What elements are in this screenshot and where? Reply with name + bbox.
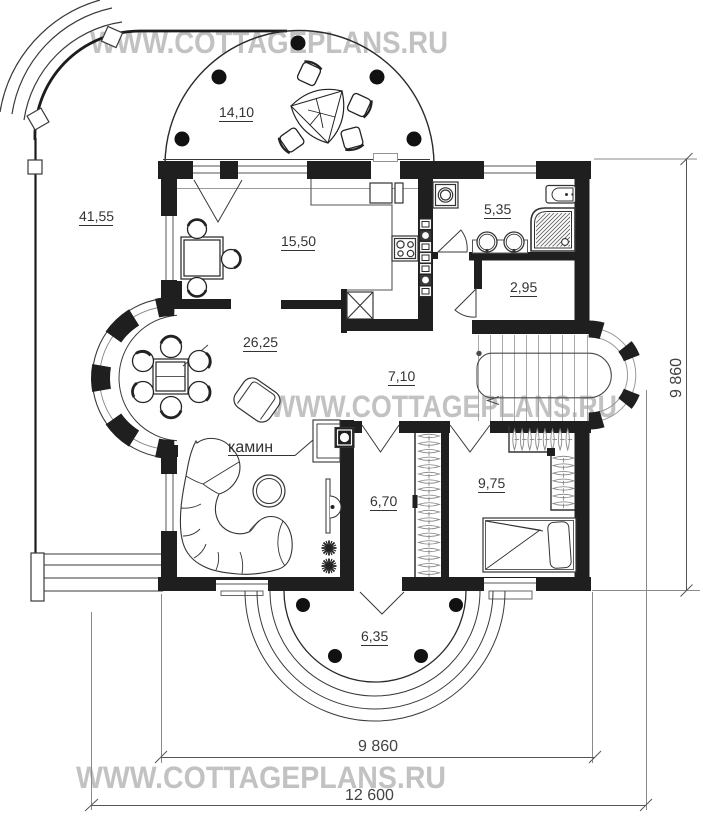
svg-text:2,95: 2,95 — [510, 279, 537, 295]
svg-text:9,75: 9,75 — [478, 475, 505, 491]
svg-text:WWW.COTTAGEPLANS.RU: WWW.COTTAGEPLANS.RU — [270, 389, 617, 424]
svg-text:26,25: 26,25 — [243, 334, 278, 350]
svg-text:6,35: 6,35 — [361, 628, 388, 644]
svg-text:15,50: 15,50 — [281, 233, 316, 249]
svg-text:41,55: 41,55 — [79, 208, 114, 224]
svg-text:5,35: 5,35 — [484, 201, 511, 217]
svg-text:9 860: 9 860 — [668, 358, 685, 398]
svg-text:7,10: 7,10 — [388, 368, 415, 384]
svg-text:14,10: 14,10 — [219, 104, 254, 120]
svg-text:12 600: 12 600 — [345, 787, 394, 804]
svg-text:9 860: 9 860 — [358, 738, 398, 755]
svg-text:6,70: 6,70 — [370, 493, 397, 509]
svg-text:камин: камин — [228, 439, 273, 456]
